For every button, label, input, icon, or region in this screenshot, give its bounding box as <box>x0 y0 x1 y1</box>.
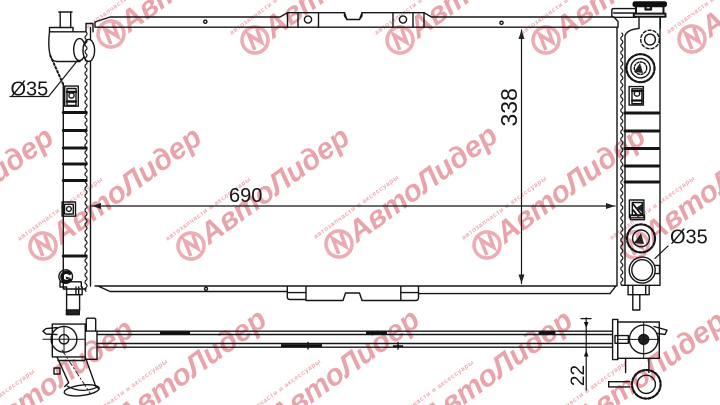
svg-text:338: 338 <box>496 88 522 126</box>
svg-text:Ø35: Ø35 <box>11 79 49 101</box>
svg-text:Ø35: Ø35 <box>670 227 708 249</box>
svg-text:690: 690 <box>229 185 262 207</box>
svg-text:22: 22 <box>568 365 589 386</box>
